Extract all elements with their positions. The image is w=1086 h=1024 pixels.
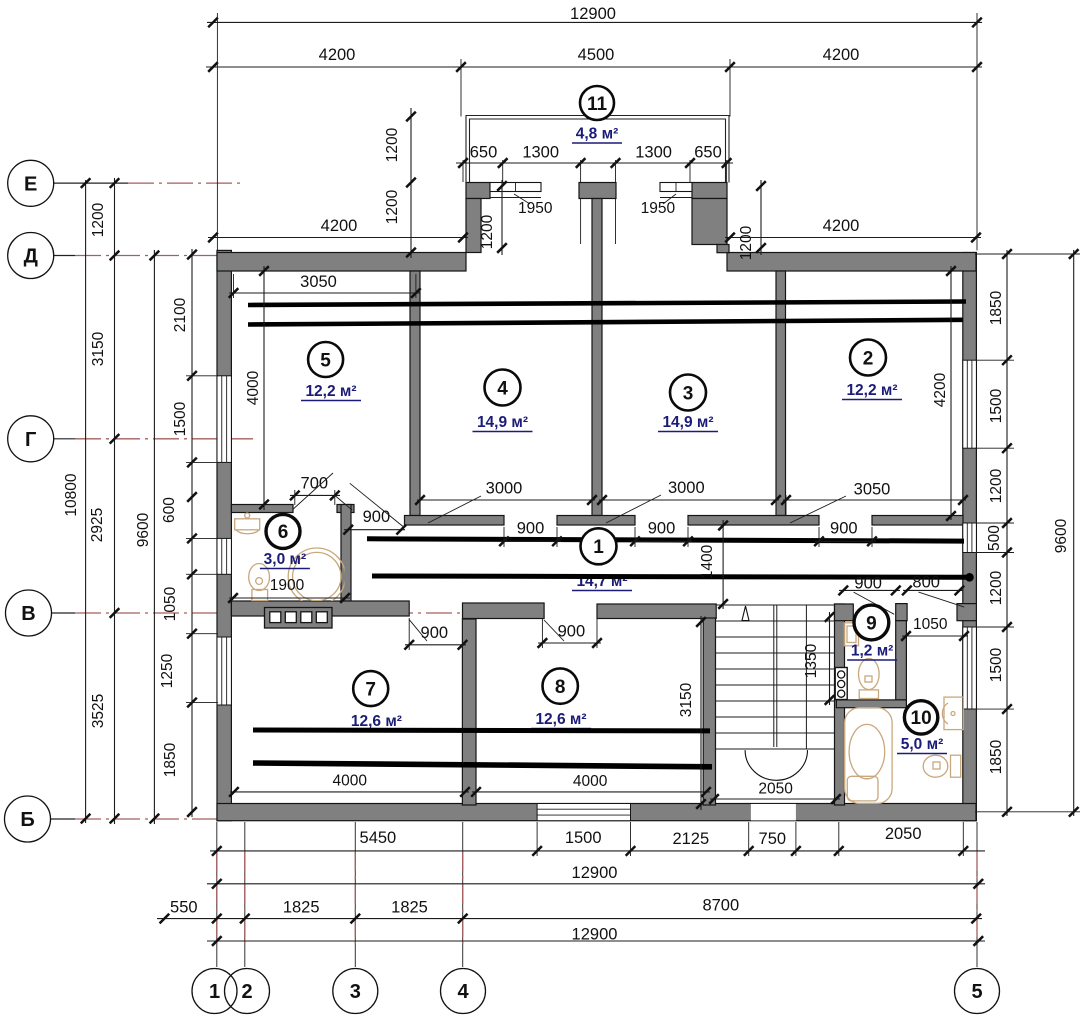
svg-text:8700: 8700	[702, 897, 739, 915]
svg-text:900: 900	[421, 624, 449, 642]
svg-text:8: 8	[555, 677, 566, 698]
svg-text:1825: 1825	[391, 899, 428, 917]
svg-text:Д: Д	[24, 246, 38, 268]
svg-text:900: 900	[648, 520, 676, 538]
svg-text:900: 900	[363, 508, 391, 526]
svg-text:1050: 1050	[162, 586, 179, 621]
svg-text:800: 800	[912, 574, 940, 592]
svg-text:3: 3	[350, 981, 361, 1003]
svg-text:1850: 1850	[162, 742, 179, 777]
svg-text:2: 2	[863, 348, 874, 369]
svg-text:3050: 3050	[300, 273, 337, 291]
svg-text:3150: 3150	[90, 331, 107, 366]
svg-text:3,0 м²: 3,0 м²	[264, 551, 306, 568]
svg-text:2: 2	[241, 981, 252, 1003]
svg-text:1200: 1200	[90, 202, 107, 237]
svg-text:В: В	[21, 603, 35, 625]
svg-text:4000: 4000	[245, 370, 262, 405]
svg-text:5,0 м²: 5,0 м²	[901, 736, 943, 753]
svg-text:9600: 9600	[1053, 518, 1070, 553]
svg-text:1300: 1300	[635, 144, 672, 162]
svg-text:9: 9	[866, 613, 877, 634]
svg-text:1500: 1500	[565, 829, 602, 847]
svg-text:1250: 1250	[159, 653, 176, 688]
svg-text:2050: 2050	[758, 781, 793, 798]
svg-text:4000: 4000	[573, 773, 608, 790]
svg-text:900: 900	[517, 520, 545, 538]
svg-text:4000: 4000	[333, 773, 368, 790]
svg-text:1200: 1200	[384, 127, 401, 162]
svg-text:12,2 м²: 12,2 м²	[846, 382, 897, 399]
svg-text:550: 550	[170, 899, 198, 917]
svg-text:750: 750	[759, 830, 787, 848]
svg-text:11: 11	[587, 94, 608, 115]
svg-text:4200: 4200	[932, 372, 949, 407]
svg-text:1825: 1825	[283, 899, 320, 917]
svg-text:1500: 1500	[988, 388, 1005, 423]
svg-text:1050: 1050	[913, 616, 948, 633]
svg-text:4200: 4200	[319, 46, 356, 64]
svg-text:900: 900	[830, 520, 858, 538]
svg-text:1950: 1950	[518, 200, 553, 217]
svg-text:3: 3	[683, 383, 694, 404]
svg-text:1200: 1200	[738, 225, 755, 260]
svg-text:1200: 1200	[479, 214, 496, 249]
svg-text:650: 650	[694, 144, 722, 162]
svg-text:1200: 1200	[988, 570, 1005, 605]
svg-text:4200: 4200	[823, 46, 860, 64]
svg-text:900: 900	[854, 575, 882, 593]
svg-text:1850: 1850	[988, 290, 1005, 325]
svg-text:14,9 м²: 14,9 м²	[477, 414, 528, 431]
svg-text:12,6 м²: 12,6 м²	[535, 711, 586, 728]
svg-text:7: 7	[365, 679, 376, 700]
svg-text:650: 650	[470, 144, 498, 162]
svg-text:Г: Г	[25, 429, 36, 451]
svg-text:14,9 м²: 14,9 м²	[662, 414, 713, 431]
svg-text:6: 6	[278, 522, 289, 543]
svg-text:1300: 1300	[522, 144, 559, 162]
svg-text:1500: 1500	[172, 401, 189, 436]
svg-text:5450: 5450	[360, 829, 397, 847]
svg-text:1: 1	[593, 537, 604, 558]
svg-text:4500: 4500	[578, 46, 615, 64]
svg-text:3150: 3150	[678, 682, 695, 717]
svg-text:1350: 1350	[803, 643, 820, 678]
svg-text:2100: 2100	[172, 297, 189, 332]
svg-text:900: 900	[558, 623, 586, 641]
svg-text:1: 1	[209, 981, 220, 1003]
svg-text:12,2 м²: 12,2 м²	[305, 383, 356, 400]
svg-text:5: 5	[971, 981, 982, 1003]
svg-text:Е: Е	[24, 174, 37, 196]
svg-text:2050: 2050	[885, 825, 922, 843]
svg-text:1500: 1500	[988, 647, 1005, 682]
svg-text:12,6 м²: 12,6 м²	[351, 713, 402, 730]
svg-text:4,8 м²: 4,8 м²	[576, 126, 618, 143]
svg-text:9600: 9600	[135, 512, 152, 547]
svg-text:12900: 12900	[572, 864, 618, 882]
svg-text:12900: 12900	[570, 5, 616, 23]
svg-text:Б: Б	[20, 809, 34, 831]
svg-text:3525: 3525	[90, 694, 107, 728]
svg-text:2925: 2925	[89, 508, 106, 542]
svg-text:1200: 1200	[988, 468, 1005, 503]
svg-text:4: 4	[497, 378, 508, 399]
svg-text:4200: 4200	[823, 217, 860, 235]
svg-text:1950: 1950	[641, 200, 676, 217]
svg-text:1400: 1400	[699, 544, 716, 579]
svg-text:2125: 2125	[672, 830, 709, 848]
svg-text:5: 5	[320, 350, 331, 371]
svg-text:4: 4	[457, 981, 469, 1003]
svg-text:500: 500	[986, 525, 1003, 551]
svg-text:12900: 12900	[572, 926, 618, 944]
svg-text:600: 600	[161, 497, 178, 523]
svg-text:1,2 м²: 1,2 м²	[851, 643, 893, 660]
svg-text:3000: 3000	[668, 479, 705, 497]
svg-text:10: 10	[911, 708, 932, 729]
svg-text:10800: 10800	[63, 473, 80, 516]
svg-text:3050: 3050	[854, 481, 891, 499]
svg-text:1900: 1900	[270, 577, 305, 594]
svg-text:3000: 3000	[486, 480, 523, 498]
svg-text:1200: 1200	[384, 189, 401, 224]
svg-text:1850: 1850	[988, 739, 1005, 774]
svg-text:4200: 4200	[321, 217, 358, 235]
